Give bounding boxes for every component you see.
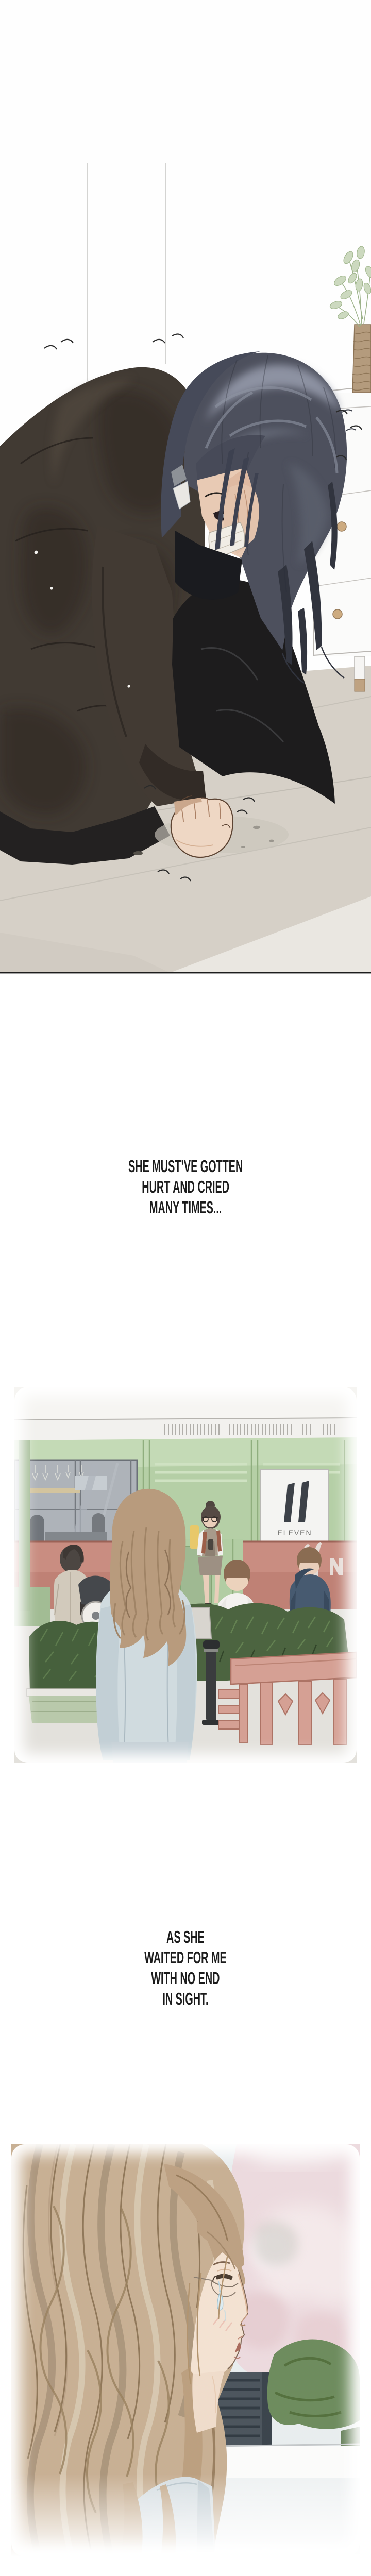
svg-text:ELEVEN: ELEVEN [277,1529,312,1537]
